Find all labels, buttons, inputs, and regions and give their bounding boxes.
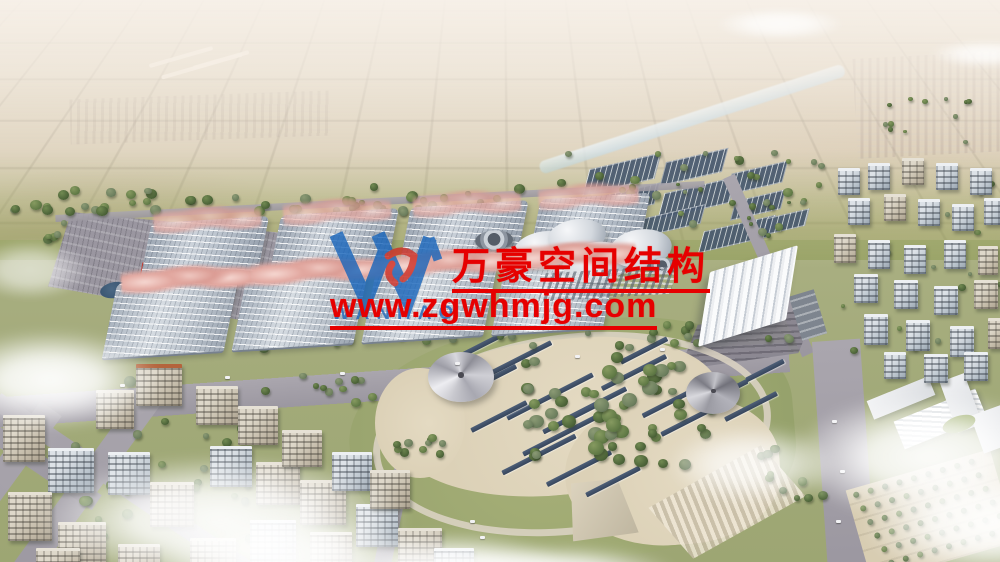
city-block-building: [884, 194, 906, 221]
tree: [897, 326, 902, 331]
tree: [555, 396, 567, 407]
city-block-building: [834, 234, 856, 263]
cloud: [668, 425, 838, 505]
tree: [428, 434, 437, 442]
city-block-building: [904, 245, 926, 274]
city-block-building: [944, 240, 966, 269]
tree: [841, 304, 845, 308]
tree: [749, 222, 753, 226]
tree: [883, 122, 888, 127]
city-block-building: [952, 204, 974, 231]
tree: [42, 205, 53, 215]
tree: [944, 97, 948, 101]
tree: [935, 338, 941, 343]
tree: [771, 150, 777, 156]
tree: [643, 364, 657, 377]
vehicle: [836, 520, 841, 523]
city-block-building: [978, 246, 998, 275]
tree: [562, 415, 576, 427]
tree: [96, 206, 107, 216]
city-block-building: [864, 314, 888, 345]
tree: [261, 387, 270, 395]
tree: [351, 398, 360, 406]
tree: [968, 272, 972, 276]
city-block-building: [854, 274, 878, 303]
tree: [674, 409, 687, 421]
tree: [888, 121, 894, 126]
tree: [963, 140, 968, 144]
tree: [368, 393, 377, 401]
vehicle: [470, 520, 475, 523]
tree: [766, 233, 771, 238]
tree: [887, 103, 892, 107]
tree: [749, 203, 756, 210]
city-block-building: [970, 168, 992, 195]
tree: [143, 198, 151, 205]
tree: [763, 200, 770, 206]
tree: [589, 390, 599, 399]
tree: [126, 190, 137, 199]
city-block-building: [906, 320, 930, 351]
tree: [680, 164, 688, 171]
cloud: [715, 8, 845, 40]
tree: [611, 352, 623, 363]
tree: [161, 418, 169, 426]
website-watermark: www.zgwhmjg.com: [330, 287, 657, 330]
tree: [320, 385, 327, 391]
tree: [786, 159, 791, 164]
tree: [335, 378, 342, 385]
city-block-building: [988, 318, 1000, 349]
tree: [129, 200, 136, 206]
city-block-building: [984, 198, 1000, 225]
cone-tent-small: [686, 372, 740, 414]
city-block-building: [868, 240, 890, 269]
tree: [439, 440, 446, 446]
tree: [588, 441, 603, 455]
city-block-building: [902, 158, 924, 185]
tree: [187, 196, 196, 205]
city-block-building: [936, 163, 958, 190]
tree: [393, 441, 401, 448]
vehicle: [575, 355, 580, 358]
tree: [734, 156, 739, 161]
city-block-building: [894, 280, 918, 309]
tree: [58, 190, 69, 200]
cone-tent-large: [428, 352, 494, 402]
tree: [655, 151, 661, 156]
aerial-rendering: WANHAO 万豪空间结构 www.zgwhmjg.com: [0, 0, 1000, 562]
tree: [81, 203, 89, 210]
city-block-building: [974, 280, 998, 309]
tree: [903, 130, 907, 134]
tree: [370, 183, 378, 190]
tree: [61, 220, 67, 226]
tree: [232, 194, 239, 200]
tree: [625, 344, 633, 351]
tree: [775, 223, 784, 231]
tree: [800, 200, 805, 205]
tree: [922, 99, 928, 104]
tree: [765, 335, 772, 342]
tree: [673, 399, 684, 409]
tree: [608, 442, 617, 450]
city-block-building: [934, 286, 958, 315]
tree: [595, 172, 604, 180]
city-block-building: [964, 352, 988, 381]
city-block-building: [196, 386, 238, 425]
vehicle: [340, 372, 345, 375]
tree: [850, 347, 858, 354]
tree: [106, 188, 115, 196]
city-block-building: [924, 354, 948, 383]
city-block-building: [238, 406, 278, 445]
tree: [703, 151, 708, 155]
tree: [529, 357, 539, 366]
logo-w-stroke: [430, 238, 438, 260]
tree: [339, 386, 346, 392]
tree: [203, 433, 210, 439]
tree: [634, 455, 648, 468]
tree: [545, 408, 558, 419]
city-block-building: [884, 352, 906, 379]
vehicle: [455, 362, 460, 365]
vehicle: [660, 348, 665, 351]
city-block-building: [918, 199, 940, 226]
tree: [529, 399, 540, 409]
tree: [931, 265, 936, 270]
tree: [648, 429, 657, 437]
city-block-building: [868, 163, 890, 190]
city-block-building: [838, 168, 860, 195]
tree: [133, 430, 143, 439]
tree: [729, 200, 735, 206]
tree: [436, 450, 444, 457]
tree: [783, 188, 793, 197]
vehicle: [225, 376, 230, 379]
tree: [668, 388, 676, 396]
tree: [606, 418, 621, 432]
tree: [769, 205, 775, 210]
tree: [70, 186, 80, 195]
tree: [54, 231, 61, 238]
city-block-building: [848, 198, 870, 225]
tree: [958, 284, 965, 290]
tree: [974, 230, 980, 236]
tree: [615, 341, 624, 350]
tree: [818, 163, 825, 169]
tree: [523, 384, 534, 394]
tree: [953, 114, 958, 118]
